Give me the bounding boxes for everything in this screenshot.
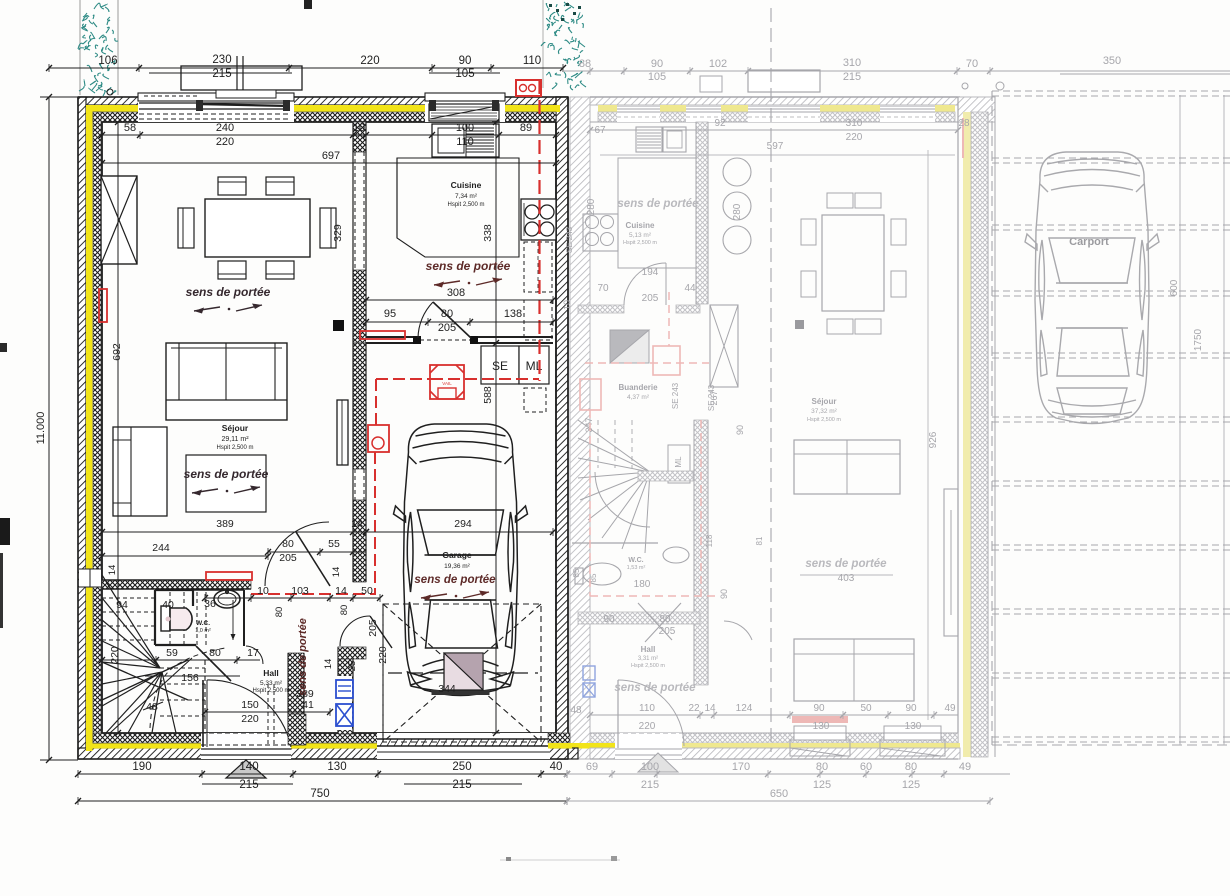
svg-text:220: 220 — [216, 136, 234, 148]
svg-text:90: 90 — [905, 703, 917, 714]
svg-text:80: 80 — [659, 614, 671, 625]
svg-text:308: 308 — [447, 287, 465, 299]
svg-text:Séjour: Séjour — [812, 397, 837, 406]
svg-text:sens de portée: sens de portée — [617, 198, 699, 210]
svg-text:ML: ML — [674, 456, 683, 468]
svg-text:80: 80 — [274, 607, 285, 618]
svg-text:100: 100 — [641, 761, 659, 773]
svg-text:80: 80 — [816, 761, 828, 773]
svg-text:92: 92 — [714, 118, 726, 129]
svg-text:110: 110 — [456, 136, 474, 148]
svg-text:600: 600 — [1169, 279, 1180, 296]
svg-text:10: 10 — [257, 585, 269, 597]
svg-text:280: 280 — [586, 198, 597, 215]
svg-text:215: 215 — [452, 779, 471, 791]
svg-text:sens de portée: sens de portée — [414, 574, 496, 586]
svg-text:37,32 m²: 37,32 m² — [811, 408, 837, 415]
svg-text:50: 50 — [361, 585, 373, 597]
svg-text:14: 14 — [107, 565, 118, 576]
svg-text:130: 130 — [813, 721, 830, 732]
svg-text:Hspit 2,500 m: Hspit 2,500 m — [447, 202, 484, 208]
svg-text:329: 329 — [332, 224, 344, 242]
svg-text:90: 90 — [459, 55, 472, 67]
svg-text:Hspit 2,500 m: Hspit 2,500 m — [623, 240, 657, 246]
svg-text:sens de portée: sens de portée — [297, 618, 309, 696]
svg-text:90: 90 — [651, 58, 663, 70]
svg-text:105: 105 — [455, 68, 474, 80]
svg-text:44: 44 — [684, 283, 696, 294]
svg-text:sens de portée: sens de portée — [805, 558, 887, 570]
svg-text:1,53 m²: 1,53 m² — [627, 565, 646, 571]
svg-text:215: 215 — [641, 779, 659, 791]
svg-text:Garage: Garage — [442, 550, 472, 560]
svg-text:Cuisine: Cuisine — [626, 221, 655, 230]
svg-text:22: 22 — [688, 703, 700, 714]
svg-text:59: 59 — [166, 647, 178, 659]
svg-text:28: 28 — [958, 118, 970, 129]
svg-text:Hall: Hall — [263, 668, 279, 678]
svg-text:41: 41 — [302, 699, 314, 711]
svg-text:sens de portée: sens de portée — [426, 259, 511, 273]
svg-text:50: 50 — [860, 703, 872, 714]
svg-text:1,0 m²: 1,0 m² — [195, 628, 211, 634]
svg-text:205: 205 — [438, 322, 456, 334]
svg-text:90: 90 — [719, 589, 729, 599]
svg-text:80: 80 — [209, 647, 221, 659]
svg-text:55: 55 — [328, 538, 340, 550]
svg-text:220: 220 — [846, 132, 863, 143]
svg-text:sens de portée: sens de portée — [614, 682, 696, 694]
svg-text:5,33 m²: 5,33 m² — [260, 680, 283, 687]
svg-text:310: 310 — [843, 57, 861, 69]
svg-text:750: 750 — [310, 788, 329, 800]
svg-text:81: 81 — [755, 536, 764, 545]
svg-text:138: 138 — [504, 308, 522, 320]
svg-text:350: 350 — [1103, 55, 1121, 67]
svg-text:SE: SE — [492, 359, 508, 373]
svg-text:10: 10 — [562, 300, 572, 310]
svg-text:Hall: Hall — [641, 645, 656, 654]
svg-text:106: 106 — [98, 55, 117, 67]
svg-text:29,11 m²: 29,11 m² — [221, 436, 249, 443]
svg-text:280: 280 — [732, 203, 743, 220]
svg-text:58: 58 — [124, 122, 136, 134]
svg-text:338: 338 — [482, 224, 494, 242]
svg-text:692: 692 — [111, 343, 123, 361]
svg-text:70: 70 — [966, 58, 978, 70]
svg-text:240: 240 — [216, 122, 234, 134]
svg-text:7,34 m²: 7,34 m² — [455, 193, 478, 200]
svg-text:14: 14 — [331, 567, 342, 578]
svg-text:103: 103 — [291, 585, 309, 597]
svg-text:85: 85 — [572, 568, 581, 577]
svg-text:80: 80 — [339, 605, 350, 616]
svg-text:19,36 m²: 19,36 m² — [444, 563, 470, 570]
svg-text:14: 14 — [335, 585, 347, 597]
svg-text:215: 215 — [239, 779, 258, 791]
svg-text:40: 40 — [550, 761, 563, 773]
svg-text:150: 150 — [241, 699, 259, 711]
svg-text:220: 220 — [109, 646, 121, 664]
svg-text:250: 250 — [452, 761, 471, 773]
svg-text:310: 310 — [846, 118, 863, 129]
svg-text:220: 220 — [639, 721, 656, 732]
svg-text:sens de portée: sens de portée — [186, 285, 271, 299]
svg-text:Cuisine: Cuisine — [451, 180, 482, 190]
svg-text:14: 14 — [704, 703, 716, 714]
svg-text:156: 156 — [181, 672, 199, 684]
svg-text:220: 220 — [241, 713, 259, 725]
svg-text:215: 215 — [843, 71, 861, 83]
svg-text:344: 344 — [438, 683, 456, 695]
svg-text:Séjour: Séjour — [222, 423, 249, 433]
svg-text:49: 49 — [944, 703, 956, 714]
svg-text:94: 94 — [116, 599, 128, 611]
svg-text:3,31 m²: 3,31 m² — [638, 656, 658, 662]
svg-text:SE 243: SE 243 — [671, 382, 680, 409]
svg-text:294: 294 — [454, 518, 472, 530]
svg-text:88: 88 — [579, 58, 591, 70]
svg-text:17: 17 — [247, 647, 259, 659]
svg-text:80: 80 — [905, 761, 917, 773]
svg-text:1750: 1750 — [1193, 328, 1204, 351]
svg-text:14: 14 — [323, 659, 334, 670]
svg-text:697: 697 — [322, 150, 340, 162]
svg-text:4,37 m²: 4,37 m² — [627, 394, 650, 401]
svg-text:125: 125 — [902, 779, 920, 791]
svg-text:Hspit 2,500 m: Hspit 2,500 m — [807, 417, 841, 423]
svg-text:220: 220 — [360, 55, 379, 67]
svg-text:25: 25 — [347, 661, 358, 672]
svg-text:140: 140 — [239, 761, 258, 773]
svg-text:205: 205 — [279, 552, 297, 564]
svg-text:180: 180 — [634, 579, 651, 590]
svg-text:650: 650 — [770, 788, 788, 800]
svg-text:194: 194 — [642, 267, 659, 278]
svg-text:60: 60 — [860, 761, 872, 773]
svg-text:95: 95 — [384, 308, 396, 320]
svg-text:110: 110 — [523, 55, 541, 67]
svg-text:89: 89 — [520, 122, 532, 134]
svg-text:926: 926 — [928, 431, 939, 448]
svg-text:48: 48 — [570, 705, 582, 716]
svg-text:100: 100 — [456, 122, 474, 134]
svg-text:49: 49 — [959, 761, 971, 773]
svg-text:11.000: 11.000 — [35, 412, 47, 445]
svg-text:102: 102 — [709, 58, 727, 70]
svg-text:220: 220 — [377, 646, 389, 664]
svg-text:W.C.: W.C. — [628, 557, 643, 564]
svg-text:5,13 m²: 5,13 m² — [629, 232, 652, 239]
svg-text:40: 40 — [162, 599, 174, 611]
svg-text:Hspit 2,500 m: Hspit 2,500 m — [216, 445, 253, 451]
svg-text:588: 588 — [482, 386, 494, 404]
svg-text:36: 36 — [204, 598, 216, 610]
svg-text:90: 90 — [813, 703, 825, 714]
svg-text:170: 170 — [732, 761, 750, 773]
svg-text:48: 48 — [146, 701, 158, 713]
svg-text:80: 80 — [441, 308, 453, 320]
svg-text:90: 90 — [603, 614, 615, 625]
svg-text:597: 597 — [767, 141, 784, 152]
svg-text:205: 205 — [642, 293, 659, 304]
svg-text:14: 14 — [351, 518, 363, 530]
svg-text:SE 243: SE 243 — [707, 384, 716, 411]
svg-text:sens de portée: sens de portée — [184, 467, 269, 481]
svg-text:69: 69 — [586, 761, 598, 773]
svg-text:SE 243: SE 243 — [565, 226, 574, 253]
svg-text:Hspit 2,500 m: Hspit 2,500 m — [252, 688, 289, 694]
svg-text:130: 130 — [905, 721, 922, 732]
svg-text:215: 215 — [212, 68, 231, 80]
svg-text:125: 125 — [813, 779, 831, 791]
svg-text:118: 118 — [705, 534, 714, 547]
svg-text:Hspit 2,500 m: Hspit 2,500 m — [631, 663, 665, 669]
svg-text:244: 244 — [152, 542, 170, 554]
svg-text:205: 205 — [367, 619, 379, 637]
svg-text:110: 110 — [639, 703, 655, 714]
svg-text:105: 105 — [648, 71, 666, 83]
svg-text:W.C.: W.C. — [196, 620, 210, 627]
svg-text:VAIL: VAIL — [442, 381, 452, 386]
svg-text:403: 403 — [838, 573, 855, 584]
svg-text:190: 190 — [132, 761, 151, 773]
svg-text:80: 80 — [282, 538, 294, 550]
svg-text:90: 90 — [735, 425, 745, 435]
svg-text:10: 10 — [353, 122, 365, 134]
svg-text:230: 230 — [212, 54, 231, 66]
svg-text:124: 124 — [736, 703, 753, 714]
svg-text:130: 130 — [327, 761, 346, 773]
svg-text:389: 389 — [216, 518, 234, 530]
svg-text:70: 70 — [597, 283, 609, 294]
svg-text:205: 205 — [659, 626, 676, 637]
svg-text:Buanderie: Buanderie — [618, 383, 658, 392]
svg-text:67: 67 — [594, 125, 606, 136]
